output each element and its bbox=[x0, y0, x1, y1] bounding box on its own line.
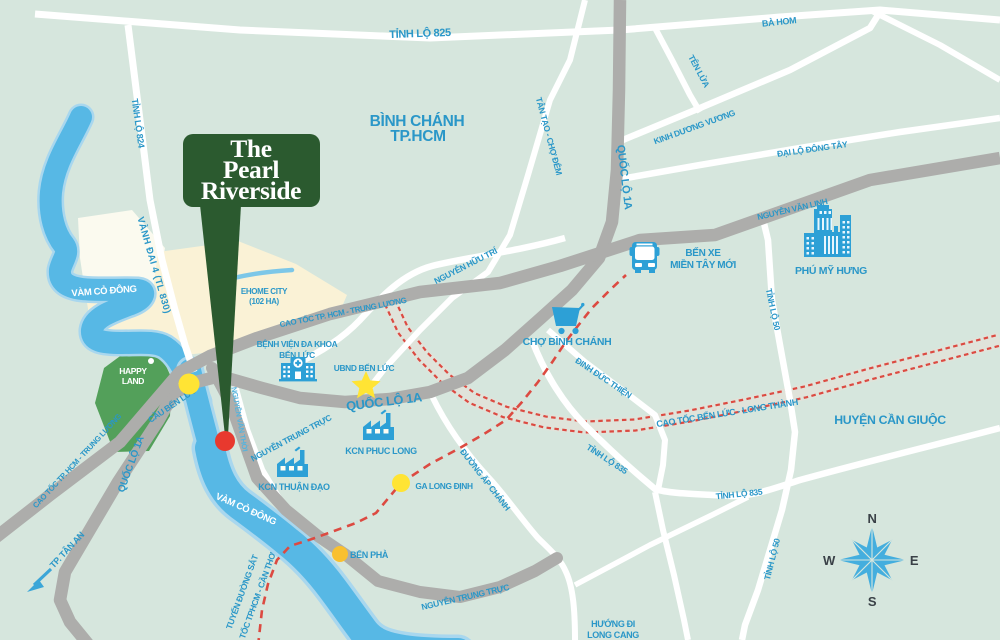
svg-text:HAPPY: HAPPY bbox=[119, 366, 147, 376]
svg-text:UBND BẾN LỨC: UBND BẾN LỨC bbox=[334, 362, 395, 373]
svg-text:N: N bbox=[867, 511, 876, 526]
svg-text:TỈNH LỘ 825: TỈNH LỘ 825 bbox=[389, 26, 451, 41]
svg-text:BỆNH VIỆN ĐA KHOA: BỆNH VIỆN ĐA KHOA bbox=[257, 338, 338, 349]
svg-text:BẾN PHÀ: BẾN PHÀ bbox=[350, 550, 389, 560]
svg-text:LAND: LAND bbox=[122, 376, 144, 386]
svg-text:EHOME CITY: EHOME CITY bbox=[241, 287, 288, 296]
svg-text:GA LONG ĐỊNH: GA LONG ĐỊNH bbox=[415, 481, 473, 491]
svg-text:S: S bbox=[868, 594, 877, 609]
svg-text:TP.HCM: TP.HCM bbox=[390, 128, 445, 145]
svg-text:BẾN XE: BẾN XE bbox=[685, 246, 721, 259]
svg-text:(102 HA): (102 HA) bbox=[249, 297, 279, 306]
svg-text:CHỢ BÌNH CHÁNH: CHỢ BÌNH CHÁNH bbox=[523, 335, 612, 348]
svg-text:KCN PHUC LONG: KCN PHUC LONG bbox=[345, 446, 417, 456]
svg-text:E: E bbox=[910, 553, 919, 568]
svg-text:KCN THUẬN ĐẠO: KCN THUẬN ĐẠO bbox=[258, 481, 330, 492]
svg-text:LONG CANG: LONG CANG bbox=[587, 630, 639, 640]
svg-text:HƯỚNG ĐI: HƯỚNG ĐI bbox=[591, 618, 635, 629]
svg-text:MIỀN TÂY MỚI: MIỀN TÂY MỚI bbox=[670, 258, 736, 271]
svg-text:Riverside: Riverside bbox=[201, 176, 301, 205]
svg-text:HUYỆN CẦN GIUỘC: HUYỆN CẦN GIUỘC bbox=[834, 412, 946, 427]
svg-text:PHÚ MỸ HƯNG: PHÚ MỸ HƯNG bbox=[795, 264, 867, 277]
svg-text:W: W bbox=[823, 553, 836, 568]
